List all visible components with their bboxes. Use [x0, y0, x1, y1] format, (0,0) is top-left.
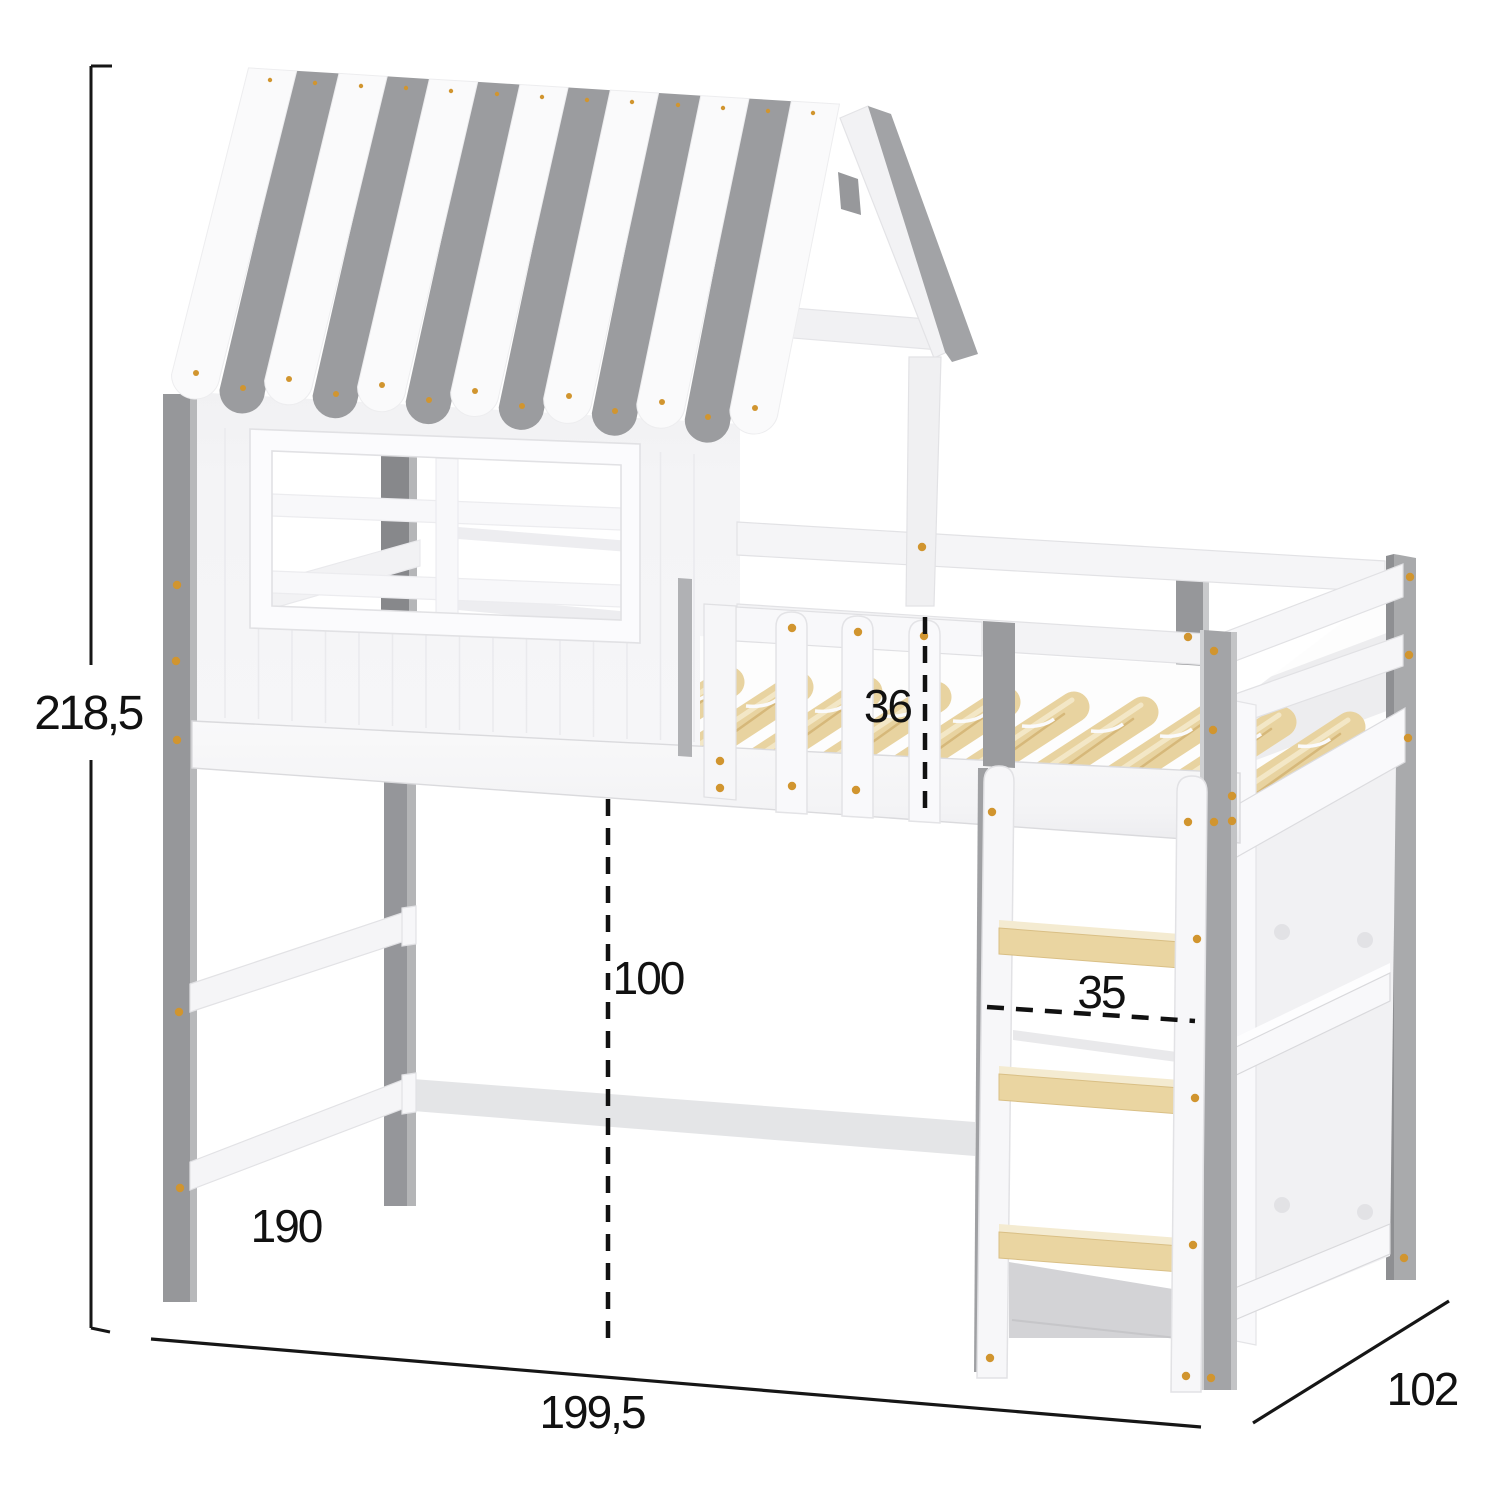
- svg-text:190: 190: [251, 1200, 322, 1252]
- svg-text:218,5: 218,5: [34, 687, 142, 740]
- svg-text:36: 36: [864, 680, 912, 732]
- svg-text:199,5: 199,5: [539, 1386, 645, 1438]
- svg-text:35: 35: [1077, 966, 1125, 1018]
- svg-text:102: 102: [1387, 1363, 1458, 1415]
- svg-text:100: 100: [613, 952, 684, 1004]
